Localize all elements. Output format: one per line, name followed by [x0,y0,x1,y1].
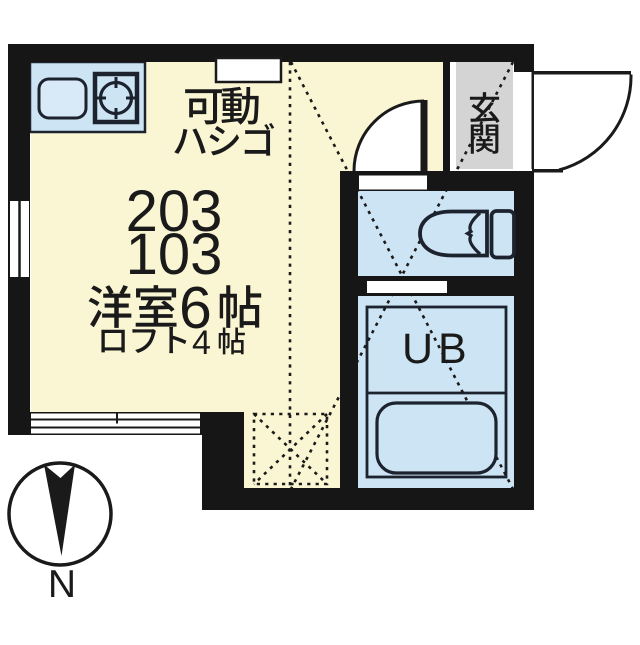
svg-text:UB: UB [402,325,472,373]
svg-text:4: 4 [192,324,211,362]
svg-text:N: N [48,563,76,606]
